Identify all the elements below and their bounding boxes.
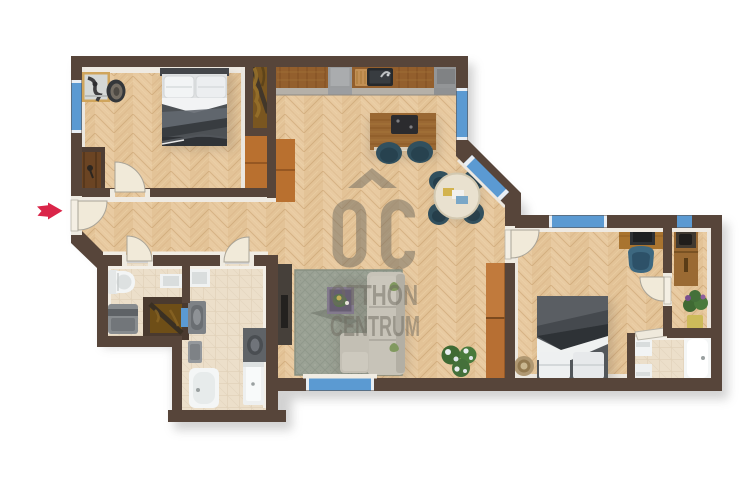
svg-text:OTTHON: OTTHON xyxy=(330,280,418,312)
svg-text:CENTRUM: CENTRUM xyxy=(330,311,420,343)
